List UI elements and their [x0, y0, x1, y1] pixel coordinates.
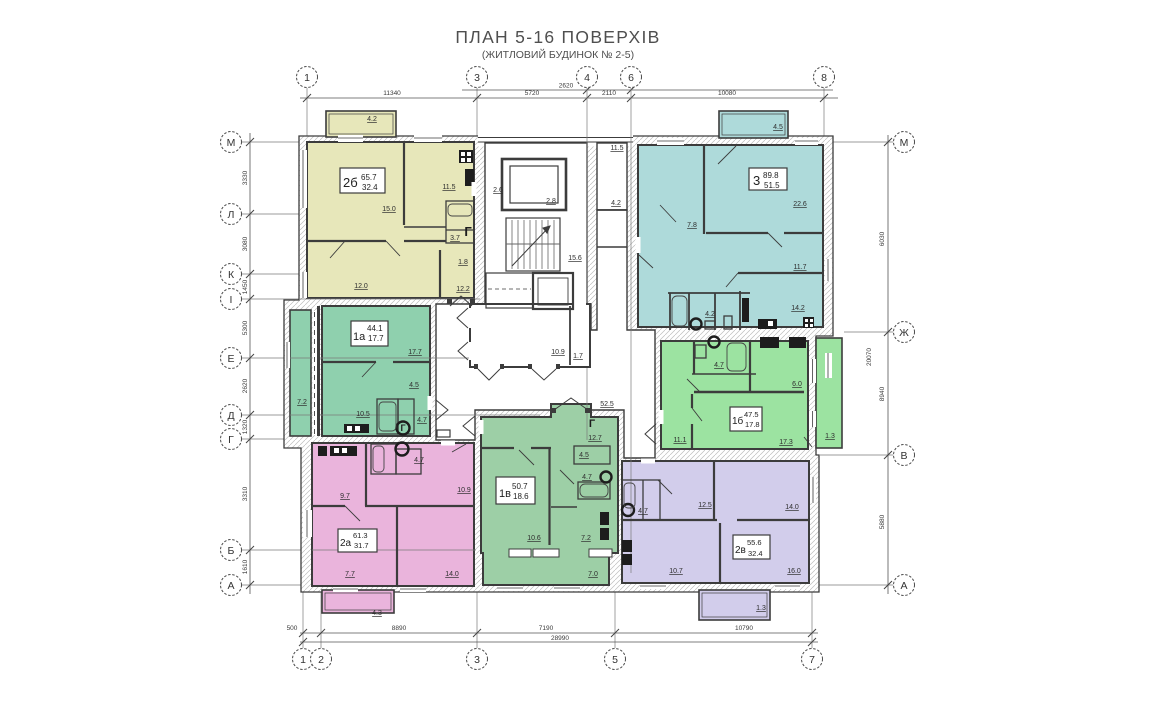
svg-text:3080: 3080 — [242, 236, 249, 251]
svg-text:61.3: 61.3 — [353, 531, 368, 540]
svg-text:17.3: 17.3 — [779, 439, 793, 446]
svg-text:4.2: 4.2 — [367, 116, 377, 123]
svg-text:32.4: 32.4 — [748, 549, 763, 558]
svg-text:65.7: 65.7 — [361, 173, 377, 182]
svg-text:4.7: 4.7 — [417, 417, 427, 424]
svg-text:Г: Г — [589, 418, 596, 430]
svg-text:14.0: 14.0 — [445, 571, 459, 578]
svg-text:6030: 6030 — [879, 231, 886, 246]
svg-text:2.6: 2.6 — [493, 187, 503, 194]
svg-text:Д: Д — [227, 410, 234, 422]
svg-text:1320: 1320 — [242, 419, 249, 434]
svg-text:55.6: 55.6 — [747, 538, 762, 547]
svg-text:9.7: 9.7 — [340, 493, 350, 500]
svg-text:4.5: 4.5 — [579, 452, 589, 459]
svg-text:15.0: 15.0 — [382, 206, 396, 213]
svg-text:5720: 5720 — [525, 90, 540, 97]
svg-text:(ЖИТЛОВИЙ БУДИНОК № 2-5): (ЖИТЛОВИЙ БУДИНОК № 2-5) — [482, 48, 634, 61]
svg-text:4.7: 4.7 — [582, 474, 592, 481]
svg-text:Ж: Ж — [899, 327, 909, 339]
svg-text:2б: 2б — [343, 175, 358, 190]
svg-text:1.3: 1.3 — [756, 605, 766, 612]
svg-text:А: А — [900, 580, 907, 592]
svg-text:10080: 10080 — [718, 90, 736, 97]
svg-text:14.2: 14.2 — [791, 305, 805, 312]
svg-text:1в: 1в — [499, 488, 511, 500]
svg-text:16.0: 16.0 — [787, 568, 801, 575]
svg-text:1а: 1а — [353, 331, 366, 343]
svg-text:18.6: 18.6 — [513, 492, 529, 501]
svg-text:17.7: 17.7 — [368, 334, 384, 343]
svg-text:1: 1 — [300, 654, 306, 666]
svg-text:4.7: 4.7 — [414, 457, 424, 464]
svg-text:4.2: 4.2 — [611, 200, 621, 207]
svg-text:8: 8 — [821, 72, 827, 84]
svg-text:7190: 7190 — [539, 625, 554, 632]
svg-text:6.0: 6.0 — [792, 381, 802, 388]
svg-text:11.1: 11.1 — [673, 437, 686, 444]
svg-text:2в: 2в — [735, 545, 746, 556]
svg-text:7.2: 7.2 — [297, 399, 307, 406]
svg-text:7.8: 7.8 — [687, 222, 697, 229]
svg-text:89.8: 89.8 — [763, 171, 779, 180]
svg-text:1610: 1610 — [242, 559, 249, 574]
svg-text:12.5: 12.5 — [698, 502, 712, 509]
svg-text:5300: 5300 — [242, 320, 249, 335]
svg-text:8890: 8890 — [392, 625, 407, 632]
svg-text:Г: Г — [400, 423, 405, 433]
svg-text:4.5: 4.5 — [773, 124, 783, 131]
svg-text:50.7: 50.7 — [512, 482, 528, 491]
svg-text:32.4: 32.4 — [362, 183, 378, 192]
svg-text:1б: 1б — [732, 415, 744, 427]
svg-text:М: М — [227, 137, 236, 149]
svg-text:К: К — [228, 269, 235, 281]
svg-text:12.0: 12.0 — [354, 283, 368, 290]
svg-text:11340: 11340 — [383, 90, 401, 97]
svg-text:12.2: 12.2 — [456, 286, 470, 293]
svg-text:10.5: 10.5 — [356, 411, 370, 418]
svg-text:І: І — [230, 294, 233, 306]
svg-text:7: 7 — [809, 654, 815, 666]
svg-text:4.7: 4.7 — [638, 508, 648, 515]
svg-text:3: 3 — [474, 654, 480, 666]
svg-text:12.7: 12.7 — [588, 435, 602, 442]
svg-text:11.5: 11.5 — [442, 184, 455, 191]
svg-text:10.9: 10.9 — [551, 349, 565, 356]
svg-text:1.8: 1.8 — [458, 259, 468, 266]
svg-text:51.5: 51.5 — [764, 181, 780, 190]
svg-text:22.6: 22.6 — [793, 201, 807, 208]
svg-text:4: 4 — [584, 72, 590, 84]
svg-text:4.2: 4.2 — [705, 311, 715, 318]
svg-text:17.7: 17.7 — [408, 349, 422, 356]
svg-text:7.2: 7.2 — [581, 535, 591, 542]
svg-text:8940: 8940 — [879, 386, 886, 401]
svg-text:500: 500 — [287, 625, 298, 632]
svg-text:5: 5 — [612, 654, 618, 666]
svg-text:М: М — [900, 137, 909, 149]
svg-text:2110: 2110 — [602, 90, 616, 97]
svg-text:15.6: 15.6 — [568, 255, 582, 262]
svg-text:2620: 2620 — [559, 83, 574, 90]
svg-text:52.5: 52.5 — [600, 401, 614, 408]
svg-text:ПЛАН 5-16 ПОВЕРХІВ: ПЛАН 5-16 ПОВЕРХІВ — [455, 27, 660, 47]
svg-text:Л: Л — [228, 209, 235, 221]
svg-text:7.0: 7.0 — [588, 571, 598, 578]
svg-text:47.5: 47.5 — [744, 410, 759, 419]
svg-text:7.7: 7.7 — [345, 571, 355, 578]
svg-text:2620: 2620 — [242, 378, 249, 393]
svg-text:3: 3 — [474, 72, 480, 84]
svg-text:А: А — [227, 580, 234, 592]
svg-text:14.0: 14.0 — [785, 504, 799, 511]
svg-text:Б: Б — [228, 545, 235, 557]
svg-text:В: В — [900, 450, 907, 462]
svg-text:11.7: 11.7 — [793, 264, 806, 271]
svg-text:2: 2 — [318, 654, 324, 666]
svg-text:31.7: 31.7 — [354, 541, 369, 550]
svg-text:Г: Г — [464, 224, 472, 239]
svg-text:3.7: 3.7 — [450, 235, 460, 242]
svg-text:1: 1 — [304, 72, 310, 84]
svg-text:4.3: 4.3 — [372, 610, 382, 617]
svg-text:3310: 3310 — [242, 486, 249, 501]
svg-text:10.7: 10.7 — [669, 568, 683, 575]
svg-text:28990: 28990 — [551, 635, 569, 642]
svg-text:Е: Е — [227, 353, 234, 365]
svg-text:3330: 3330 — [242, 170, 249, 185]
svg-text:10.9: 10.9 — [457, 487, 471, 494]
svg-text:4.7: 4.7 — [714, 362, 724, 369]
svg-text:6: 6 — [628, 72, 634, 84]
svg-text:11.5: 11.5 — [610, 145, 623, 152]
svg-text:10.6: 10.6 — [527, 535, 541, 542]
svg-text:20070: 20070 — [866, 348, 873, 366]
svg-text:5880: 5880 — [879, 514, 886, 529]
svg-text:Г: Г — [228, 434, 234, 446]
svg-text:1450: 1450 — [242, 279, 249, 294]
svg-text:1.7: 1.7 — [573, 353, 583, 360]
svg-text:3: 3 — [753, 173, 760, 188]
svg-text:2а: 2а — [340, 538, 352, 549]
svg-text:4.5: 4.5 — [409, 382, 419, 389]
svg-text:44.1: 44.1 — [367, 324, 383, 333]
svg-text:10790: 10790 — [735, 625, 753, 632]
svg-text:2.8: 2.8 — [546, 198, 556, 205]
svg-text:1.3: 1.3 — [825, 433, 835, 440]
svg-text:17.8: 17.8 — [745, 420, 760, 429]
